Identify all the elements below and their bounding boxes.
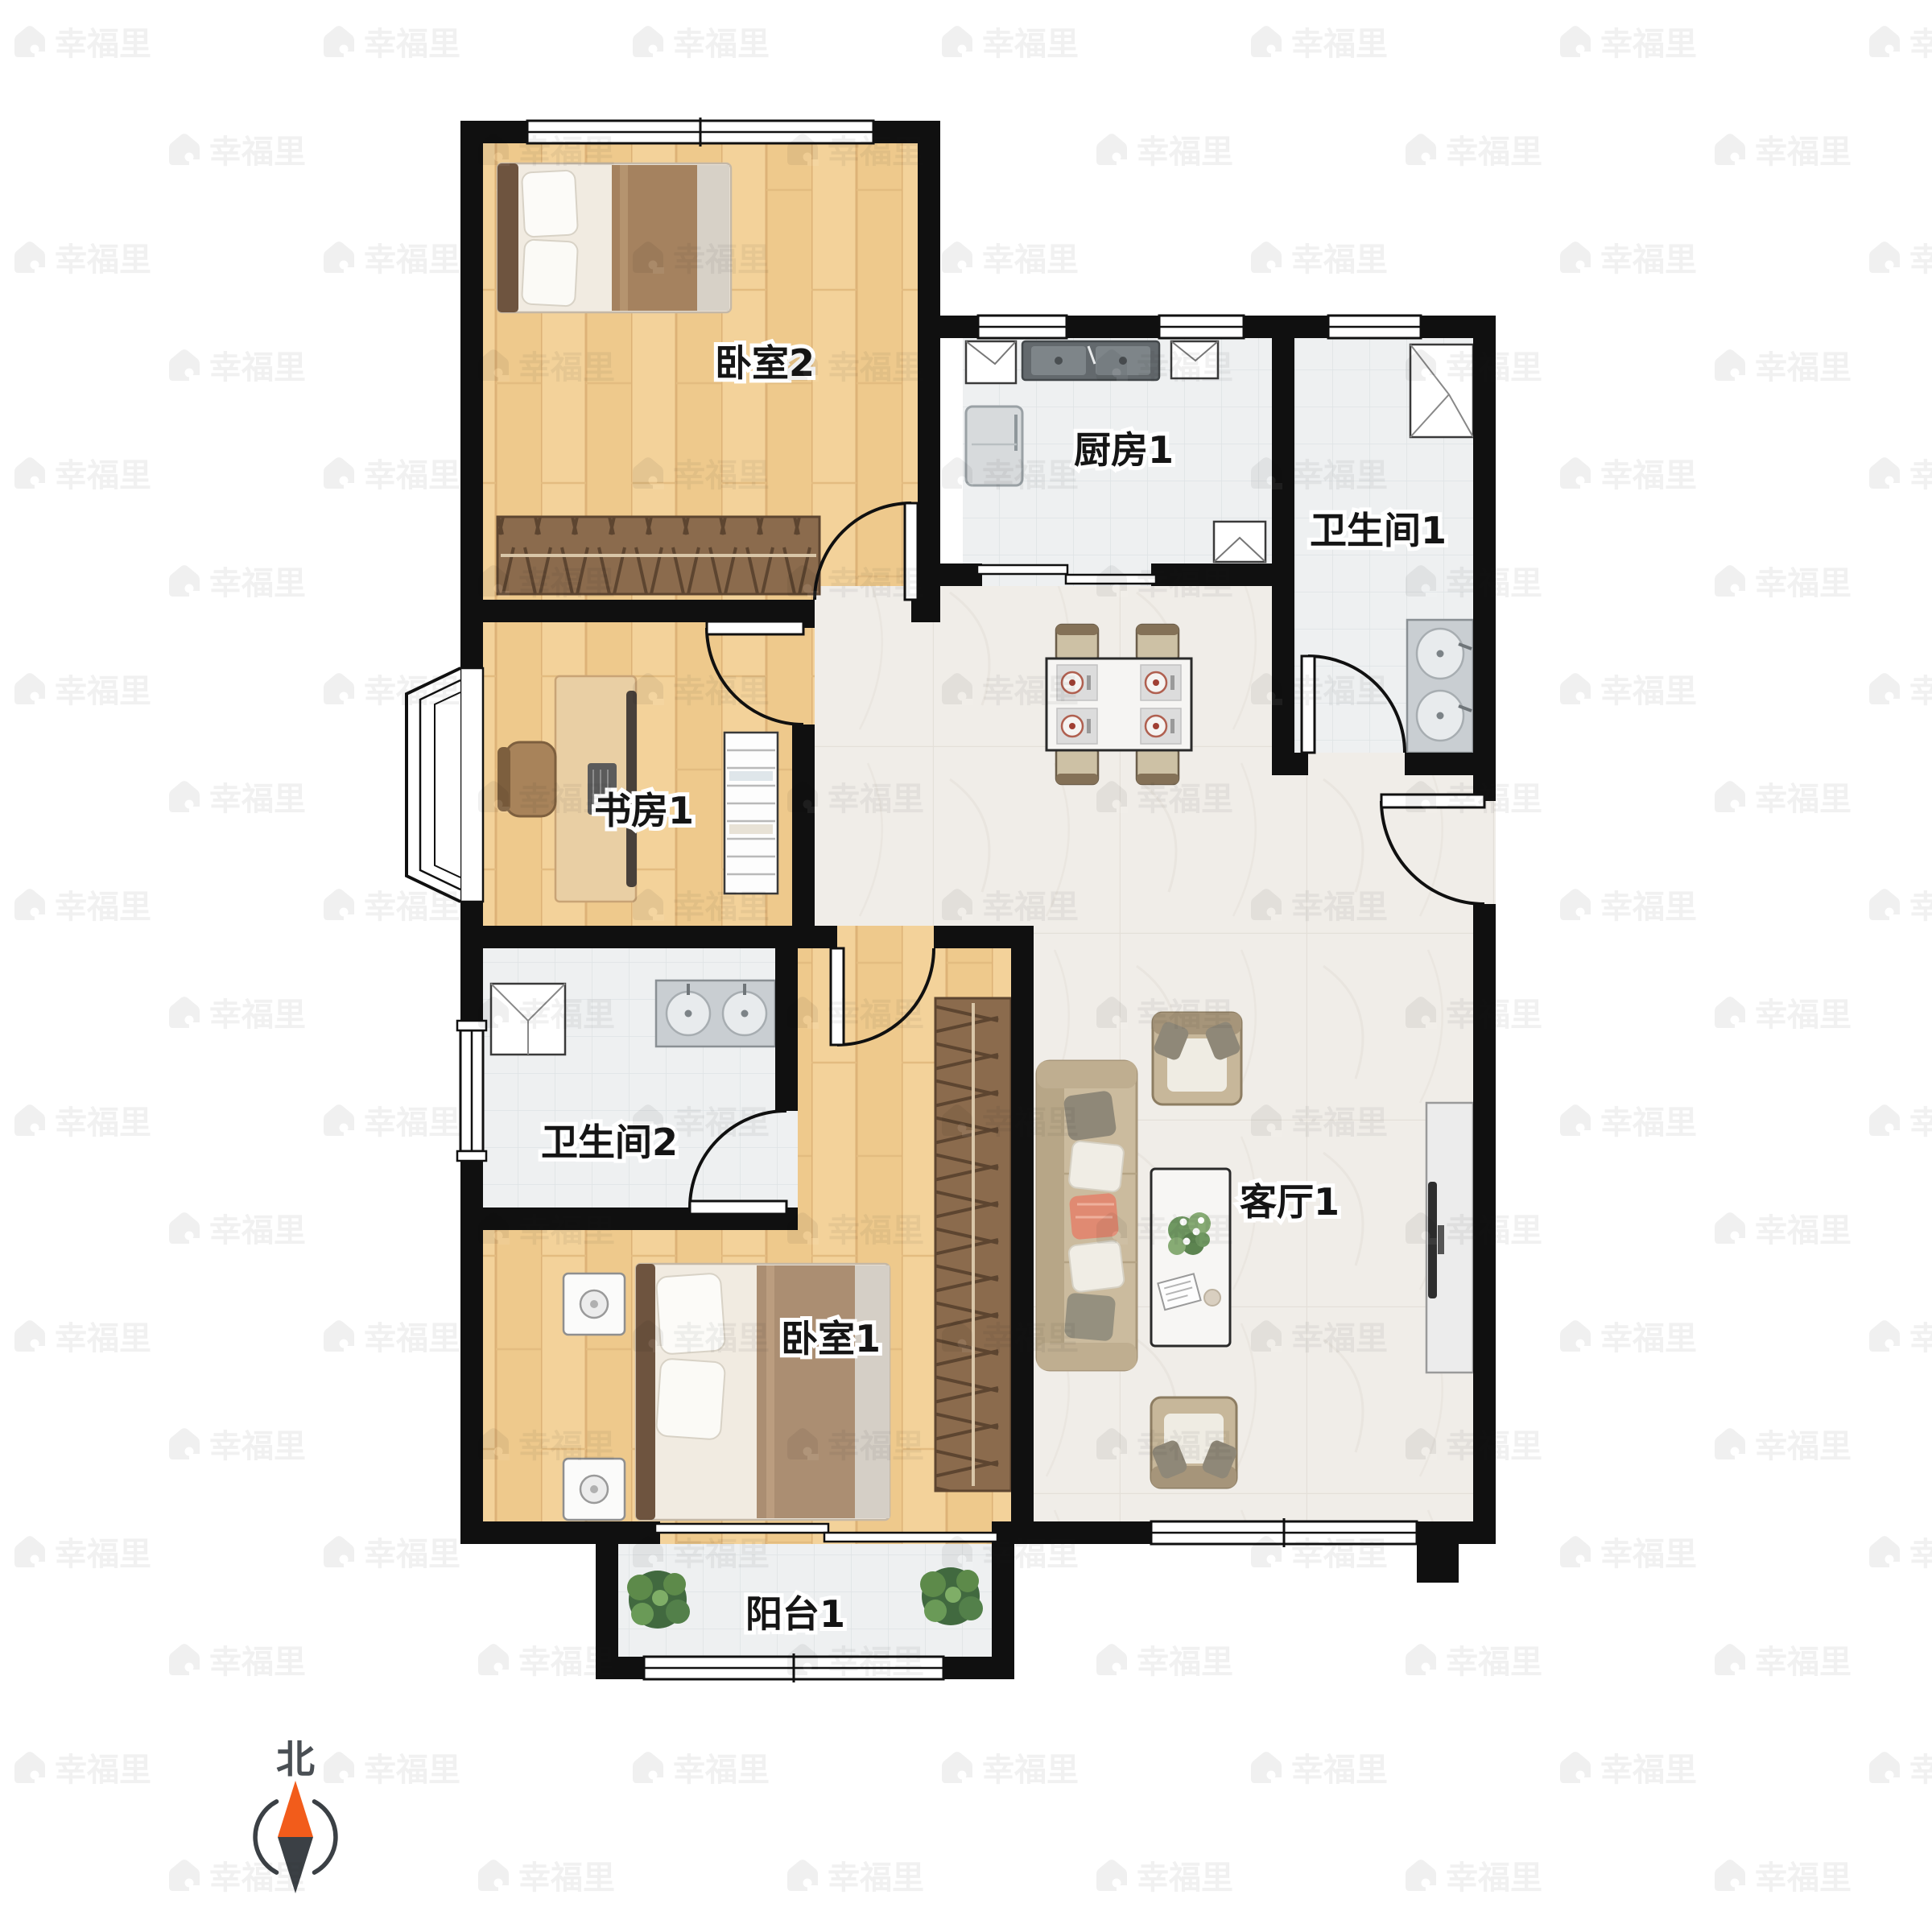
floor-plan-canvas: 幸福里 幸福里 [0, 0, 1932, 1932]
floor-plan-drawing: 幸福里 幸福里 [0, 0, 1932, 1932]
watermark-overlay [0, 0, 1932, 1932]
